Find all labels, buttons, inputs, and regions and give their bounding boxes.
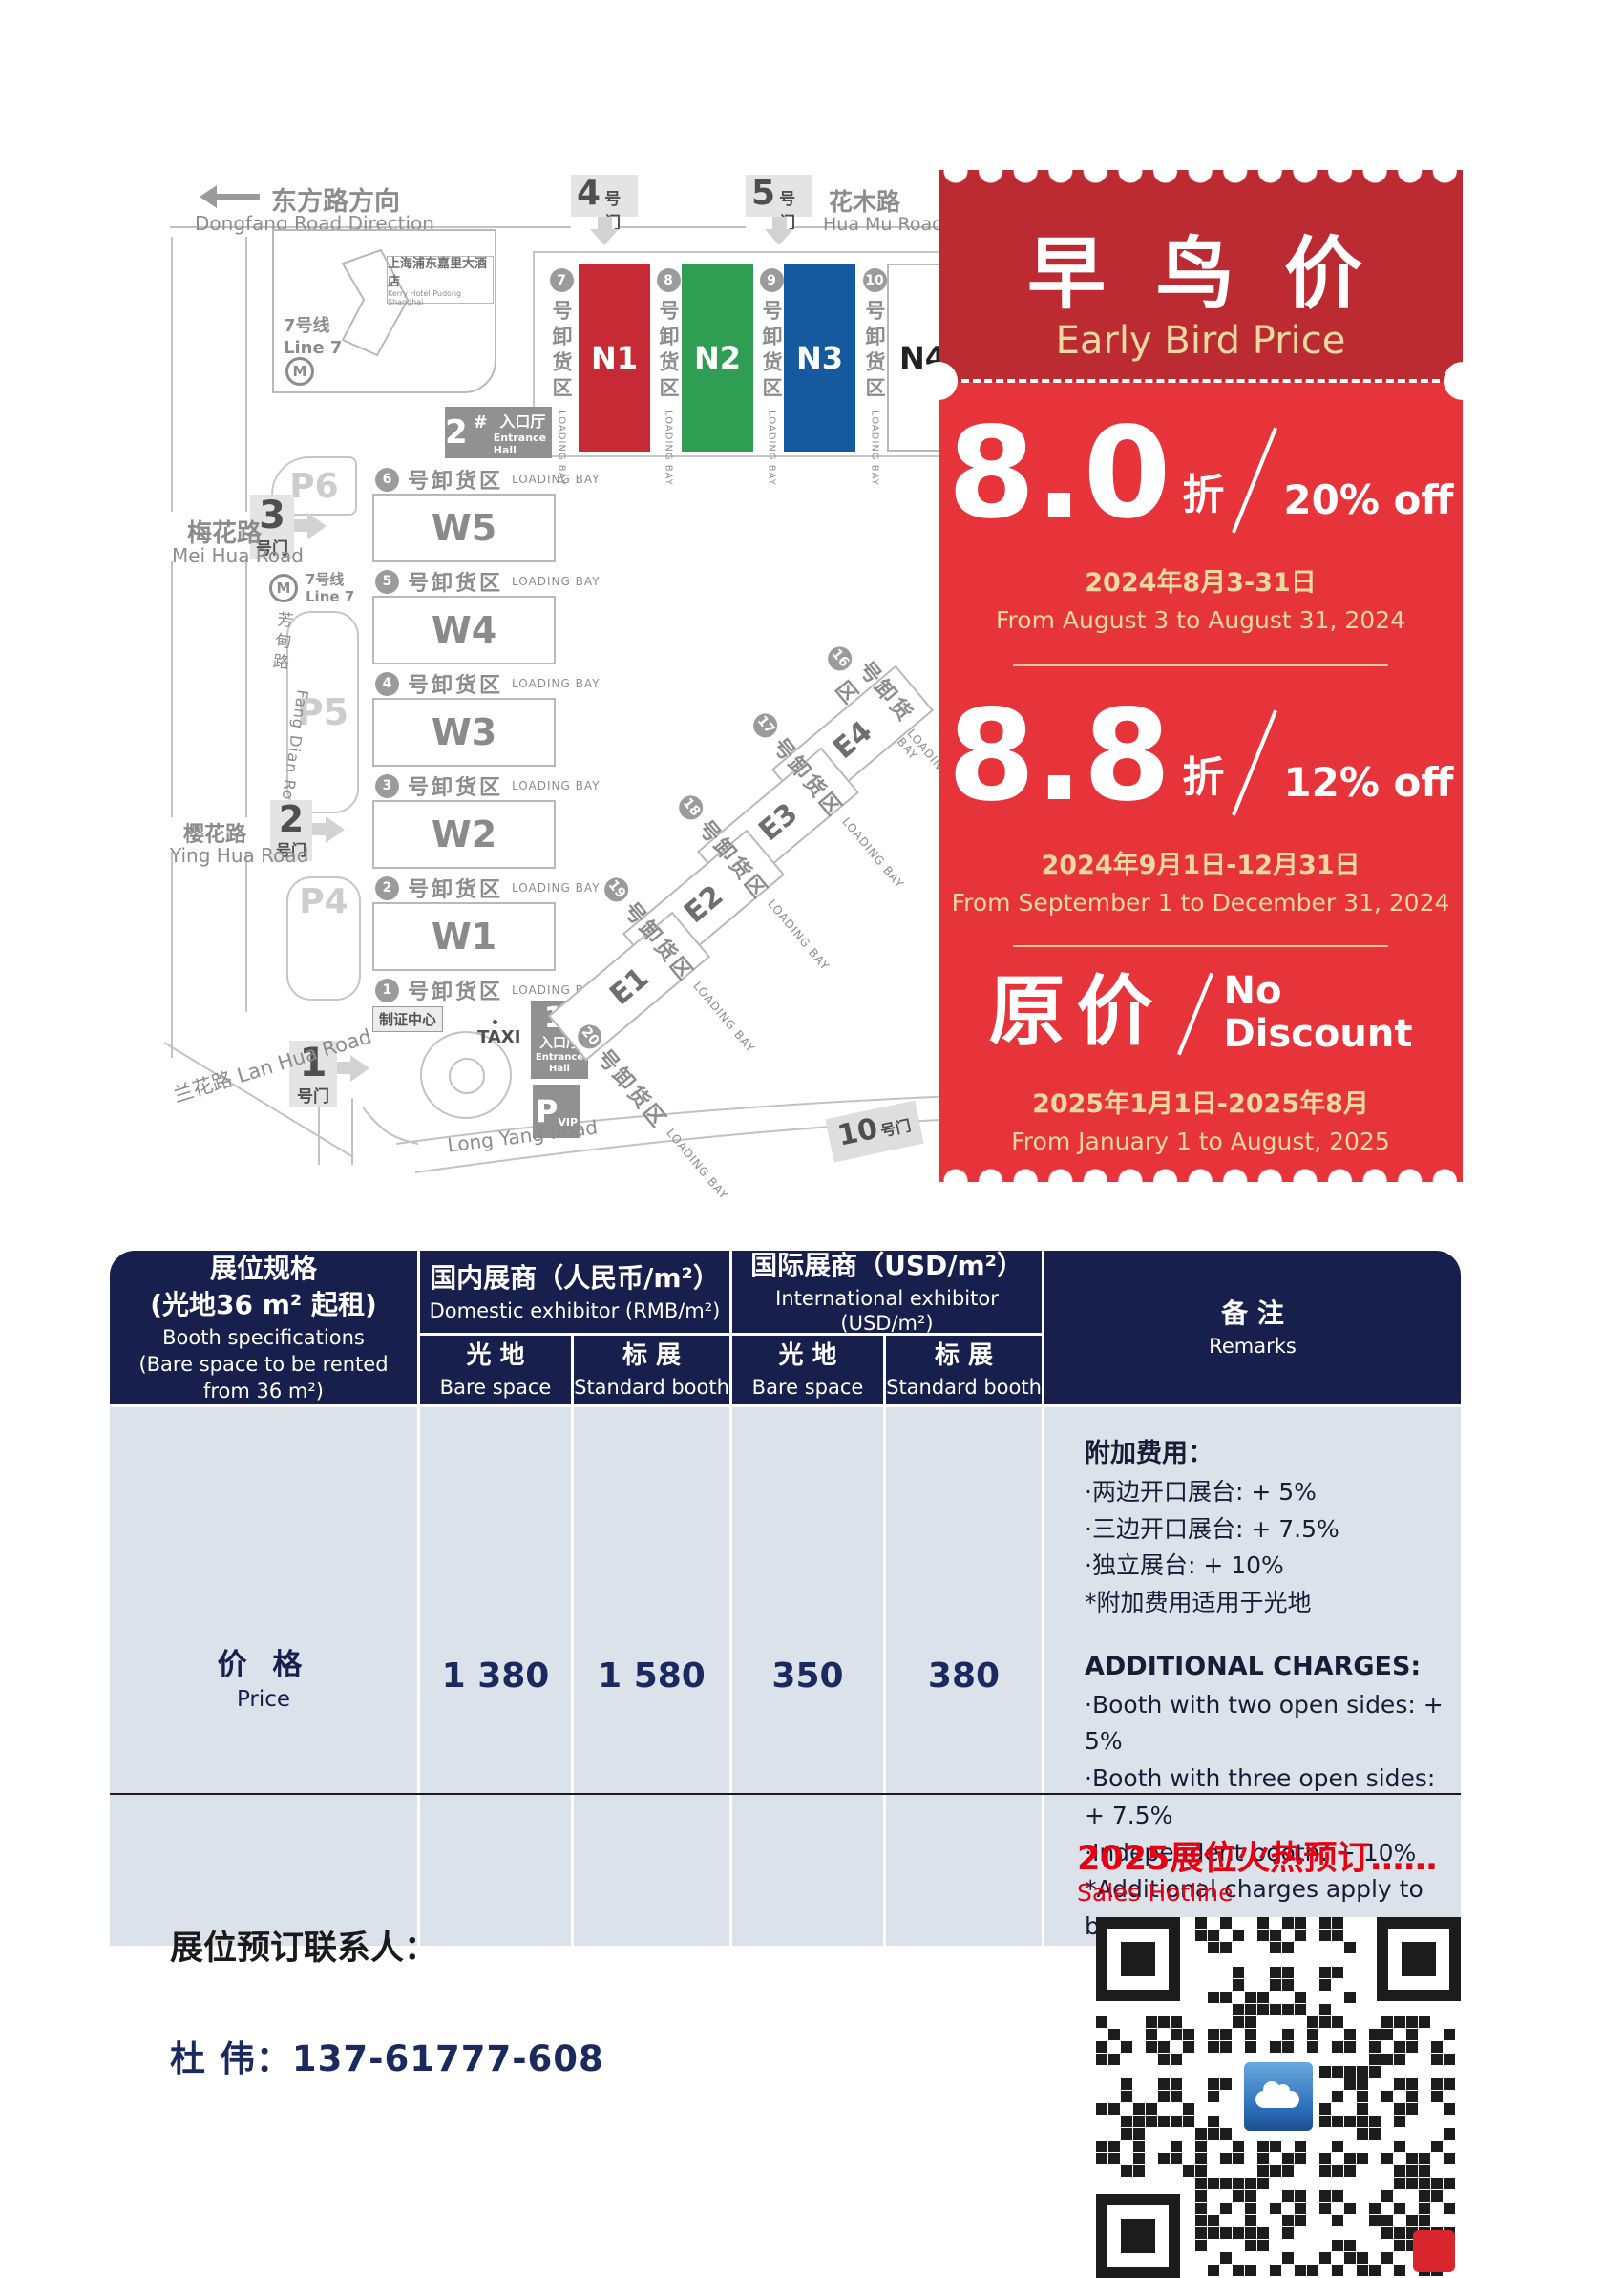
loading-bay-2: 2 号卸货区 LOADING BAY (375, 873, 600, 903)
price-dom-bare: 1 380 (420, 1407, 571, 1946)
bay-4-number: 4 (375, 672, 399, 696)
intl-bare-zh: 光 地 (778, 1339, 836, 1373)
loading-bay-4: 4 号卸货区 LOADING BAY (375, 668, 600, 699)
spec-zh-1: 展位规格 (210, 1251, 317, 1287)
line7-zh: 7号线 (284, 315, 342, 337)
bay-9-en: LOADING BAY (767, 411, 777, 486)
hall-w5: W5 (372, 494, 556, 562)
ticket-divider-1 (1013, 664, 1388, 666)
price-intl-bare: 350 (732, 1407, 883, 1946)
table-header-spec: 展位规格 (光地36 m² 起租) Booth specifications (… (110, 1251, 417, 1404)
parking-p4: P4 (286, 876, 361, 1001)
qr-red-corner-mark (1413, 2230, 1455, 2272)
ticket-perforation-top (939, 170, 1463, 189)
table-header-international: 国际展商（USD/m²） International exhibitor (US… (732, 1251, 1042, 1333)
tier-1-discount: 8.0 (948, 411, 1171, 537)
spec-en-1: Booth specifications (162, 1325, 365, 1350)
price-zh: 价 格 (218, 1640, 310, 1683)
bay-8-zh: 号卸货区 (654, 300, 683, 403)
ticket-dashed-line (939, 379, 1463, 383)
intl-std-zh: 标 展 (935, 1339, 993, 1373)
bay-1-number: 1 (375, 979, 399, 1002)
bay-6-en: LOADING BAY (512, 473, 600, 486)
early-bird-title-zh: 早 鸟 价 (939, 210, 1463, 324)
price-row-label: 价 格 Price (110, 1407, 417, 1946)
bay-7-zh: 号卸货区 (547, 300, 576, 403)
early-bird-title-en: Early Bird Price (939, 319, 1463, 363)
hall-w2: W2 (372, 800, 556, 869)
hotel-block: 上海浦东嘉里大酒店 Kerry Hotel Pudong Shanghai 7号… (272, 229, 496, 393)
entrance-2-hash: # (474, 412, 488, 432)
hotel-name-en: Kerry Hotel Pudong Shanghai (388, 289, 493, 306)
price-tier-1: 8.0 折 20% off 2024年8月3-31日 From August 3… (939, 411, 1463, 634)
intl-bare-en: Bare space (752, 1375, 864, 1400)
entrance-1-en: Entrance Hall (531, 1052, 588, 1075)
remarks-en-item-1: ·Booth with two open sides: + 5% (1085, 1687, 1461, 1761)
contact-label: 展位预订联系人： (170, 1921, 437, 1970)
spec-en-3: from 36 m²) (203, 1379, 324, 1403)
tier-2-date-zh: 2024年9月1日-12月31日 (1041, 844, 1360, 881)
gate-5: 5 号门 (746, 175, 812, 217)
hall-w1: W1 (372, 902, 556, 971)
loading-bay-8: 8 号卸货区 LOADING BAY (651, 268, 685, 486)
table-header-remarks: 备 注 Remarks (1044, 1251, 1461, 1404)
tier-1-zhe: 折 (1182, 460, 1224, 521)
gate-3-arrow-icon (307, 513, 340, 539)
remarks-zh: 备 注 (1221, 1296, 1284, 1332)
bay-9-number: 9 (760, 268, 784, 292)
dom-bare-zh: 光 地 (466, 1339, 524, 1373)
gate-2-number: 2 (279, 801, 304, 837)
sales-hotline-en: Sales Hotline (1077, 1879, 1234, 1907)
tier-3-date-zh: 2025年1月1日-2025年8月 (1032, 1083, 1369, 1120)
table-subheader-intl-std: 标 展 Standard booth (886, 1336, 1042, 1404)
bay-6-number: 6 (375, 468, 399, 492)
tier-2-zhe: 折 (1182, 743, 1224, 804)
gate-4-number: 4 (577, 177, 601, 211)
remarks-en-item-2: ·Booth with three open sides: + 7.5% (1085, 1761, 1461, 1835)
remarks-en-title: ADDITIONAL CHARGES: (1085, 1647, 1421, 1687)
gate-4-arrow-stem (598, 217, 612, 230)
spec-zh-2: (光地36 m² 起租) (150, 1287, 377, 1323)
hall-n2: N2 (682, 264, 753, 452)
hotel-label-box: 上海浦东嘉里大酒店 Kerry Hotel Pudong Shanghai (387, 256, 494, 304)
loading-bay-5: 5 号卸货区 LOADING BAY (375, 566, 600, 597)
ticket-notch-right (1444, 362, 1482, 400)
bay-2-zh: 号卸货区 (408, 873, 503, 903)
roundabout-inner (449, 1058, 485, 1094)
entrance-2-en: Entrance Hall (494, 432, 552, 456)
taxi-dot (493, 1020, 497, 1024)
gate-10-number: 10 (835, 1115, 880, 1151)
gate-3-number: 3 (259, 496, 285, 535)
hall-w4: W4 (372, 596, 556, 664)
ticket-divider-2 (1013, 945, 1388, 947)
tier-2-off: 12% off (1283, 759, 1453, 806)
tier-2-slash (1232, 710, 1277, 816)
tier-1-date-en: From August 3 to August 31, 2024 (996, 606, 1405, 634)
table-subheader-dom-bare: 光 地 Bare space (420, 1336, 571, 1404)
gate-2-arrow-icon (326, 816, 358, 843)
flyer-page: 东方路方向 Dongfang Road Direction 上海浦东嘉里大酒店 … (0, 0, 1624, 2278)
sales-hotline-zh: 2025展位火热预订…… (1077, 1831, 1437, 1880)
bay-2-number: 2 (375, 876, 399, 900)
gate-5-number: 5 (751, 177, 775, 211)
gate-5-arrow-stem (772, 217, 787, 230)
gate-1-suffix: 号门 (297, 1083, 329, 1107)
tier-3-no-discount: No Discount (1224, 970, 1413, 1056)
line7-label-lower: M 7号线 Line 7 (269, 571, 354, 605)
remarks-zh-item-3: ·独立展台: + 10% (1085, 1548, 1284, 1585)
table-header-domestic: 国内展商（人民币/m²） Domestic exhibitor (RMB/m²) (420, 1251, 729, 1333)
taxi-label: TAXI (477, 1027, 520, 1047)
bay-8-en: LOADING BAY (664, 411, 674, 486)
qr-cloud-icon (1255, 2091, 1299, 2108)
domestic-zh: 国内展商（人民币/m²） (430, 1260, 720, 1297)
tier-1-slash (1232, 428, 1277, 534)
qr-code (1096, 1917, 1461, 2278)
qr-center-logo (1240, 2058, 1317, 2135)
bay-5-en: LOADING BAY (512, 575, 600, 588)
price-intl-std: 380 (886, 1407, 1042, 1946)
yinghua-road-en: Ying Hua Road (170, 844, 308, 867)
remarks-en: Remarks (1209, 1334, 1297, 1359)
gate-2-arrow-stem (312, 823, 327, 835)
line7-zh-2: 7号线 (306, 571, 354, 588)
bay-10-en: LOADING BAY (870, 411, 880, 486)
loading-bay-6: 6 号卸货区 LOADING BAY (375, 464, 600, 495)
tier-1-date-zh: 2024年8月3-31日 (1085, 561, 1317, 599)
remarks-zh-item-4: *附加费用适用于光地 (1085, 1585, 1312, 1622)
gate-10-suffix: 号门 (878, 1112, 913, 1141)
meihua-road-en: Mei Hua Road (172, 544, 304, 567)
bay-6-zh: 号卸货区 (408, 464, 503, 495)
bay-1-zh: 号卸货区 (408, 975, 503, 1005)
bay-9-zh: 号卸货区 (757, 300, 786, 403)
tier-3-no: No (1224, 970, 1413, 1013)
hall-w3: W3 (372, 698, 556, 767)
bay-10-number: 10 (863, 268, 887, 292)
remarks-zh-item-2: ·三边开口展台: + 7.5% (1085, 1511, 1339, 1549)
huamu-road-zh: 花木路 (829, 183, 900, 218)
gate-3-arrow-stem (294, 519, 308, 532)
entrance-2-zh: 入口厅 (499, 409, 545, 432)
bay-4-zh: 号卸货区 (408, 668, 503, 699)
bay-3-en: LOADING BAY (512, 779, 600, 792)
huamu-road-en: Hua Mu Road (823, 214, 943, 235)
price-tier-2: 8.8 折 12% off 2024年9月1日-12月31日 From Sept… (939, 693, 1463, 917)
spec-en-2: (Bare space to be rented (138, 1352, 388, 1377)
gate-1-arrow-stem (337, 1062, 351, 1074)
tier-3-original-price: 原价 (989, 974, 1165, 1058)
bay-10-zh: 号卸货区 (860, 300, 889, 403)
venue-map: 东方路方向 Dongfang Road Direction 上海浦东嘉里大酒店 … (0, 0, 1012, 1203)
domestic-en: Domestic exhibitor (RMB/m²) (430, 1298, 721, 1323)
tier-2-date-en: From September 1 to December 31, 2024 (952, 889, 1450, 917)
tier-3-date-en: From January 1 to August, 2025 (1011, 1128, 1390, 1155)
bay-5-number: 5 (375, 570, 399, 594)
bay-5-zh: 号卸货区 (408, 566, 503, 597)
left-arrow-stem (204, 194, 260, 200)
gate-4: 4 号门 (571, 175, 638, 217)
international-zh: 国际展商（USD/m²） (750, 1248, 1023, 1284)
bay-4-en: LOADING BAY (512, 677, 600, 690)
dom-bare-en: Bare space (440, 1375, 552, 1400)
bay-3-number: 3 (375, 774, 399, 798)
international-en: International exhibitor (USD/m²) (732, 1286, 1042, 1337)
tier-1-off: 20% off (1283, 476, 1453, 523)
bay-7-number: 7 (550, 268, 574, 292)
remarks-zh-item-1: ·两边开口展台: + 5% (1085, 1474, 1317, 1511)
entrance-hall-2-badge: 2 # 入口厅 Entrance Hall (445, 407, 552, 458)
metro-logo-icon-2: M (269, 574, 298, 602)
remarks-zh-title: 附加费用： (1085, 1434, 1213, 1474)
hall-n1: N1 (579, 264, 650, 452)
bay-3-zh: 号卸货区 (408, 770, 503, 801)
tier-3-discount-word: Discount (1224, 1013, 1413, 1056)
price-table: 展位规格 (光地36 m² 起租) Booth specifications (… (110, 1251, 1461, 1724)
line7-en-2: Line 7 (306, 588, 354, 605)
dom-std-zh: 标 展 (622, 1339, 681, 1373)
badge-center-label: 制证中心 (372, 1006, 443, 1032)
loading-bay-3: 3 号卸货区 LOADING BAY (375, 770, 600, 801)
contact-person-phone: 杜 伟：137-61777-608 (170, 2030, 604, 2081)
table-subheader-intl-bare: 光 地 Bare space (732, 1336, 883, 1404)
metro-logo-icon: M (285, 357, 314, 386)
hotel-name-zh: 上海浦东嘉里大酒店 (388, 253, 493, 289)
intl-std-en: Standard booth (886, 1375, 1042, 1400)
price-en: Price (237, 1687, 290, 1712)
tier-3-slash (1176, 973, 1213, 1056)
footer-divider (110, 1793, 1461, 1795)
hall-n3: N3 (784, 264, 855, 452)
gate-1-arrow-icon (350, 1055, 383, 1082)
line7-label-hotel: 7号线 Line 7 (284, 315, 342, 360)
ticket-perforation-bottom (939, 1163, 1463, 1182)
bay-2-en: LOADING BAY (512, 881, 600, 895)
table-subheader-dom-std: 标 展 Standard booth (574, 1336, 729, 1404)
ticket-notch-left (919, 362, 958, 400)
entrance-2-number: 2 (445, 413, 468, 452)
price-tier-3: 原价 No Discount 2025年1月1日-2025年8月 From Ja… (939, 970, 1463, 1155)
tier-2-discount: 8.8 (948, 693, 1171, 819)
early-bird-ticket-panel: 早 鸟 价 Early Bird Price 8.0 折 20% off 202… (939, 170, 1463, 1182)
dom-std-en: Standard booth (574, 1375, 729, 1400)
line7-en: Line 7 (284, 337, 342, 359)
bay-8-number: 8 (657, 268, 681, 292)
price-dom-std: 1 580 (574, 1407, 729, 1946)
